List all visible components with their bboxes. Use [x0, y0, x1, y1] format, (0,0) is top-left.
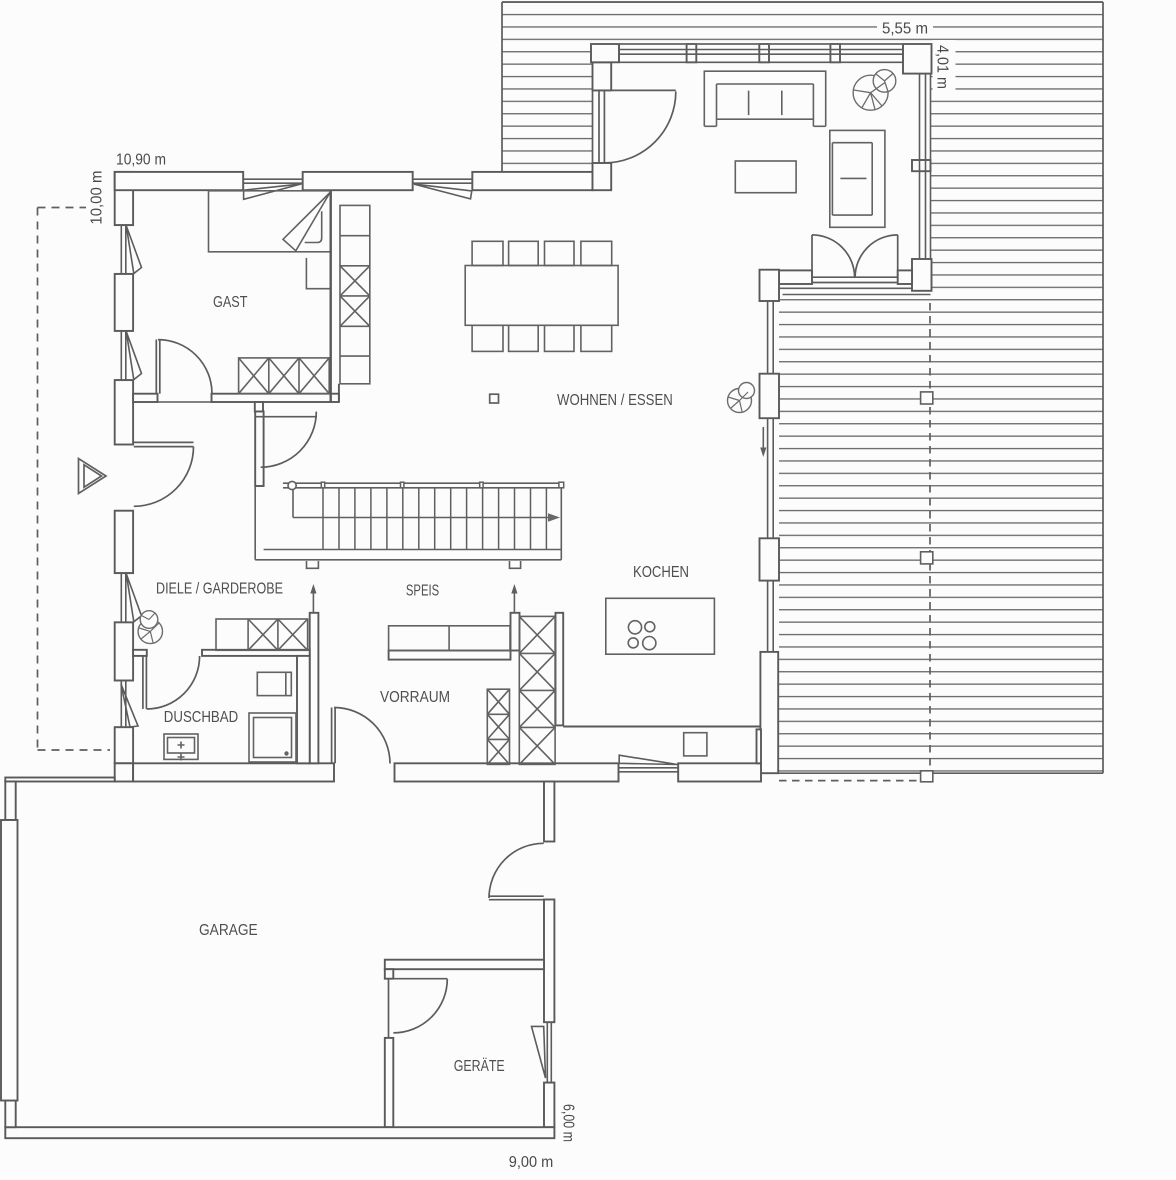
- svg-text:4,01 m: 4,01 m: [934, 45, 951, 89]
- svg-text:KOCHEN: KOCHEN: [633, 564, 689, 581]
- svg-text:WOHNEN / ESSEN: WOHNEN / ESSEN: [557, 392, 673, 409]
- svg-text:10,90 m: 10,90 m: [116, 152, 166, 169]
- svg-text:DIELE / GARDEROBE: DIELE / GARDEROBE: [156, 581, 283, 598]
- svg-text:6,00 m: 6,00 m: [560, 1104, 577, 1142]
- svg-text:GAST: GAST: [213, 294, 248, 311]
- svg-text:DUSCHBAD: DUSCHBAD: [164, 709, 238, 726]
- svg-text:SPEIS: SPEIS: [406, 583, 439, 600]
- svg-text:GERÄTE: GERÄTE: [454, 1057, 505, 1075]
- svg-text:5,55 m: 5,55 m: [882, 21, 928, 38]
- svg-text:GARAGE: GARAGE: [199, 922, 258, 939]
- svg-text:10,00 m: 10,00 m: [89, 171, 106, 225]
- svg-text:9,00 m: 9,00 m: [509, 1154, 554, 1171]
- svg-text:VORRAUM: VORRAUM: [380, 689, 450, 706]
